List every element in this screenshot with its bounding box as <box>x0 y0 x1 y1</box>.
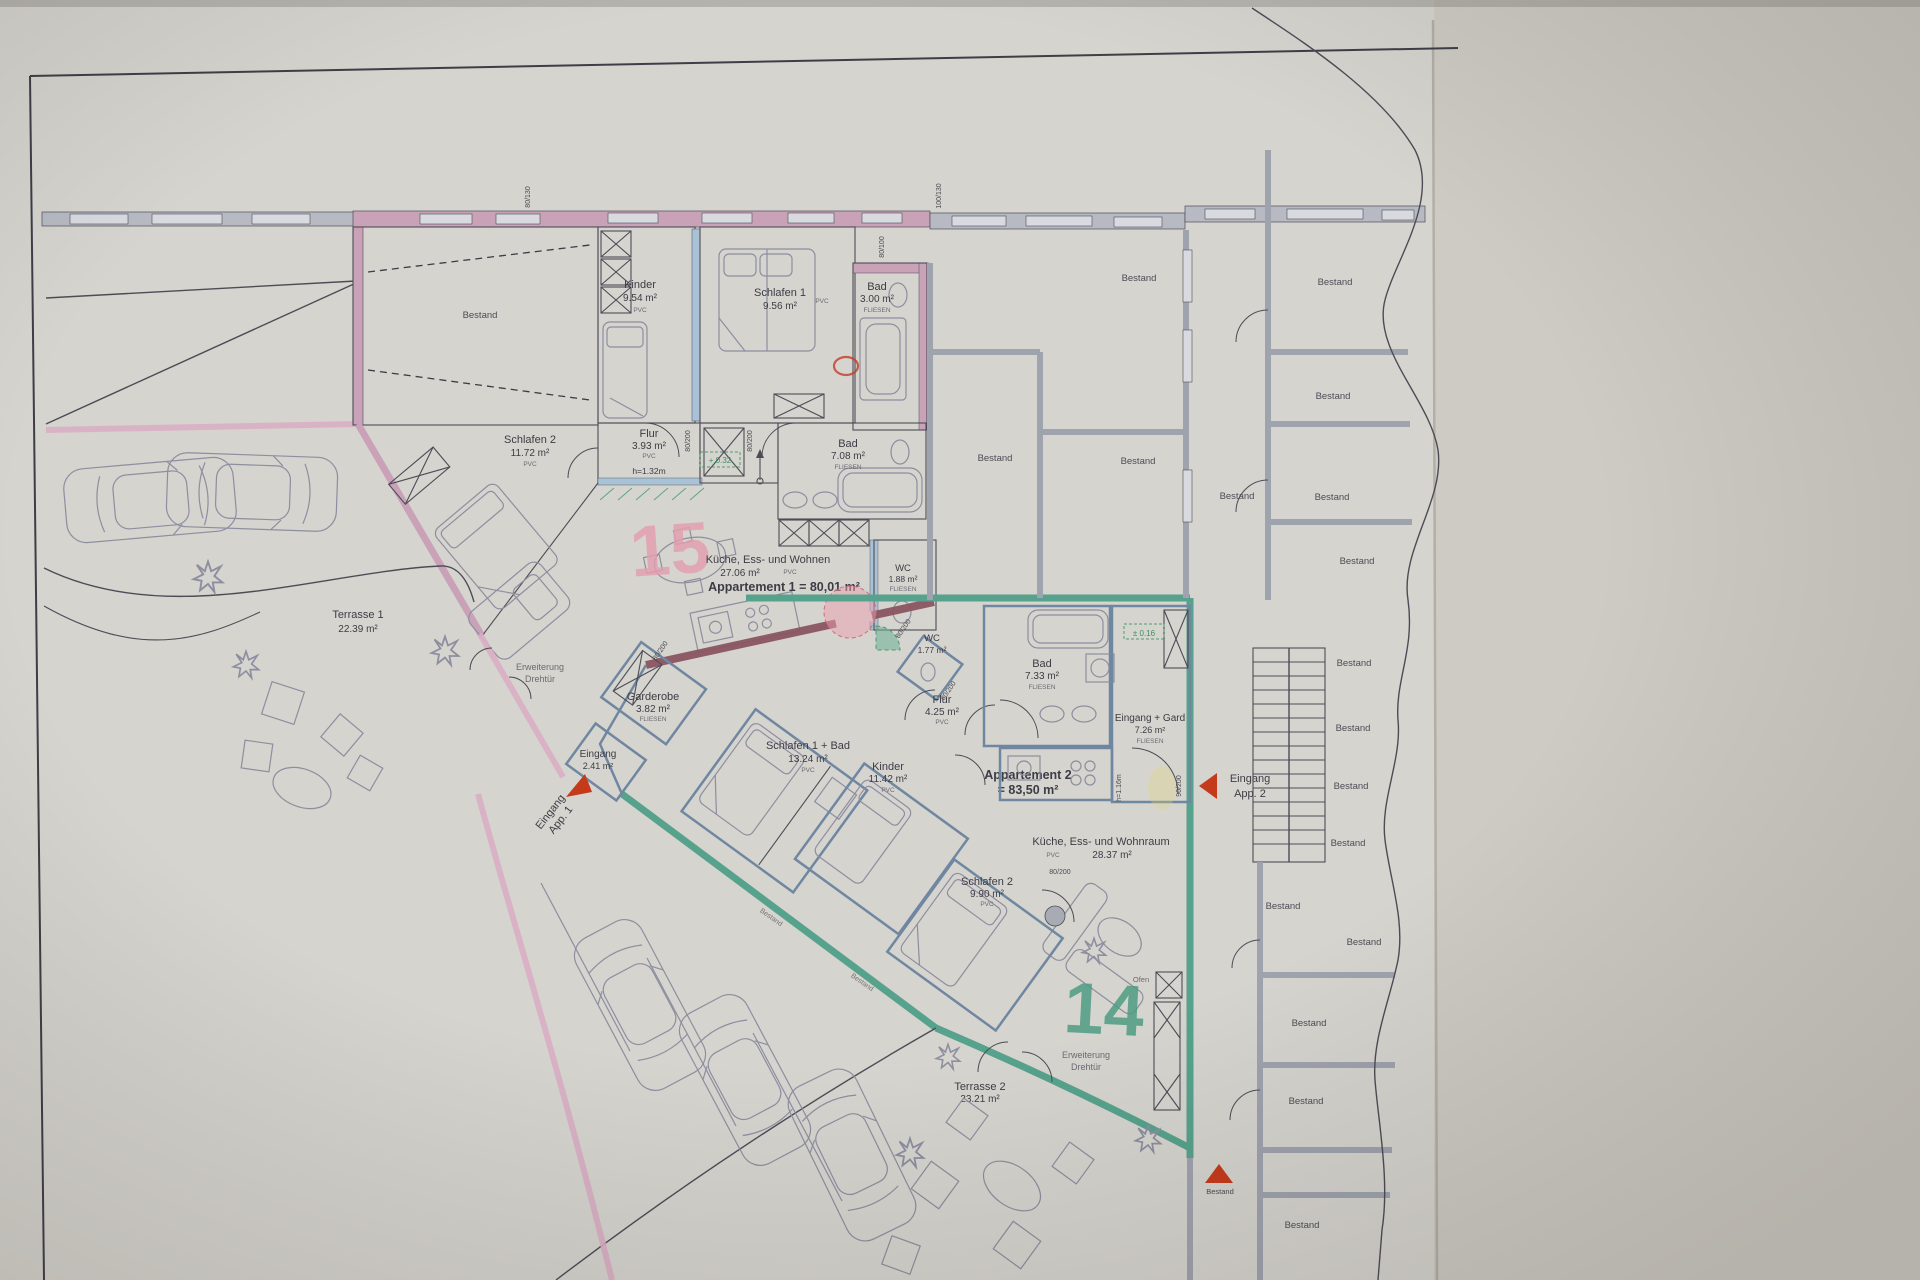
photo-vignette <box>0 0 1920 1280</box>
floor-plan-drawing: 80/130 100/130 Bestand Kinder 9.54 m² PV… <box>0 0 1920 1280</box>
floor-plan-photo: 80/130 100/130 Bestand Kinder 9.54 m² PV… <box>0 0 1920 1280</box>
